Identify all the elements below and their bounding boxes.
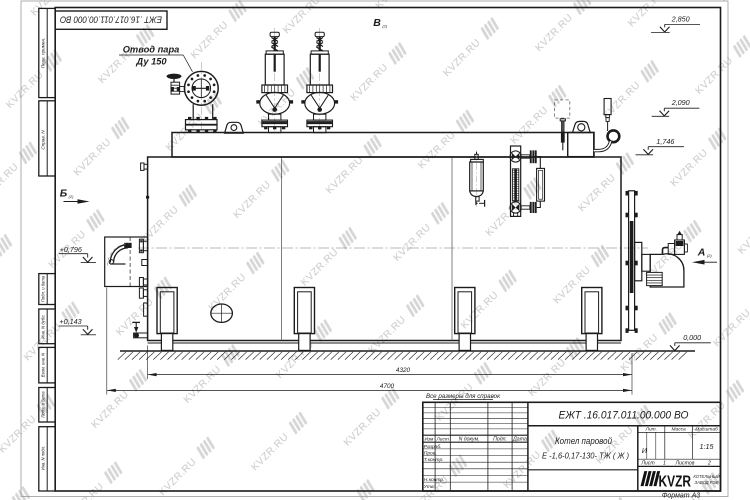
svg-text:Лит.: Лит. xyxy=(645,427,657,433)
svg-text:Б: Б xyxy=(60,188,68,200)
svg-text:N докум.: N докум. xyxy=(459,437,480,443)
svg-text:4700: 4700 xyxy=(380,383,395,390)
svg-text:1: 1 xyxy=(663,461,666,467)
svg-text:А: А xyxy=(697,247,706,259)
svg-text:Инв. N подл.: Инв. N подл. xyxy=(40,446,45,470)
svg-text:Подп.: Подп. xyxy=(493,437,507,443)
svg-text:(2): (2) xyxy=(707,253,713,258)
svg-text:Утв.: Утв. xyxy=(424,484,435,490)
svg-text:Инв. N дубл.: Инв. N дубл. xyxy=(40,314,45,338)
svg-text:ЗАВОД РЭИ: ЗАВОД РЭИ xyxy=(695,480,719,485)
svg-text:Справ. N: Справ. N xyxy=(40,130,45,150)
svg-text:И: И xyxy=(642,446,648,455)
svg-text:2: 2 xyxy=(707,461,711,467)
svg-text:Н.контр.: Н.контр. xyxy=(424,477,445,483)
svg-text:1:15: 1:15 xyxy=(700,442,715,451)
svg-text:Дата: Дата xyxy=(512,437,527,443)
svg-text:4320: 4320 xyxy=(396,367,411,374)
svg-text:Лист: Лист xyxy=(436,436,449,442)
svg-text:(2): (2) xyxy=(382,24,388,29)
svg-text:Перв. примен.: Перв. примен. xyxy=(40,38,45,69)
svg-text:ЕЖТ .16.017.011.00.000 ВО: ЕЖТ .16.017.011.00.000 ВО xyxy=(559,410,689,422)
svg-text:Е -1,6-0,17-130- ТЖ ( Ж ): Е -1,6-0,17-130- ТЖ ( Ж ) xyxy=(542,451,629,461)
svg-text:2,090: 2,090 xyxy=(671,98,690,107)
svg-text:КОТЕЛЬНЫЙ: КОТЕЛЬНЫЙ xyxy=(693,474,719,479)
svg-text:2,850: 2,850 xyxy=(671,14,690,23)
svg-text:Пров.: Пров. xyxy=(424,450,437,456)
svg-text:Все размеры для справок: Все размеры для справок xyxy=(426,393,501,400)
svg-text:Т.контр.: Т.контр. xyxy=(424,457,444,463)
svg-text:Разраб.: Разраб. xyxy=(424,444,442,450)
svg-text:Подп. и дата: Подп. и дата xyxy=(40,275,45,302)
svg-text:0,000: 0,000 xyxy=(683,333,701,342)
svg-text:Отвод пара: Отвод пара xyxy=(123,45,180,55)
svg-text:Масштаб: Масштаб xyxy=(695,427,718,433)
svg-text:(2): (2) xyxy=(69,194,75,199)
svg-text:Формат А3: Формат А3 xyxy=(662,493,700,500)
svg-text:Подп. и дата: Подп. и дата xyxy=(40,391,45,418)
svg-text:ЕЖТ .16.017.011.00.000 ВО: ЕЖТ .16.017.011.00.000 ВО xyxy=(60,15,162,25)
svg-text:Листов: Листов xyxy=(675,461,695,467)
svg-text:Ду 150: Ду 150 xyxy=(135,57,167,67)
svg-text:+0,796: +0,796 xyxy=(60,245,82,254)
svg-text:Лист: Лист xyxy=(640,461,655,467)
svg-text:KVZR: KVZR xyxy=(659,473,692,490)
svg-text:1,746: 1,746 xyxy=(656,137,674,146)
svg-text:Изм: Изм xyxy=(424,436,434,442)
svg-text:Масса: Масса xyxy=(672,427,687,433)
svg-text:+0,143: +0,143 xyxy=(59,317,81,326)
svg-text:В: В xyxy=(373,17,381,29)
svg-text:Котел паровой: Котел паровой xyxy=(555,436,612,446)
svg-text:Взам. инв. N: Взам. инв. N xyxy=(40,352,45,377)
